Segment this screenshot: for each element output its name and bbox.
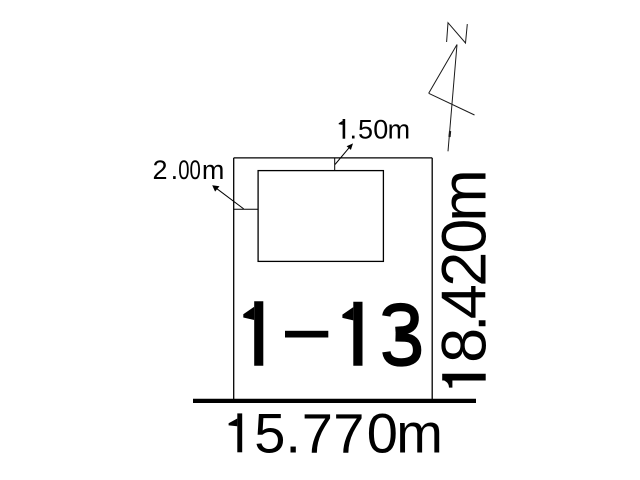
svg-text:m: m (202, 155, 225, 185)
svg-text:2.: 2. (153, 155, 179, 185)
svg-text:8.420m: 8.420m (430, 169, 500, 363)
svg-text:5.770m: 5.770m (254, 401, 443, 464)
svg-text:00: 00 (178, 155, 201, 185)
svg-text:.50m: .50m (350, 115, 411, 145)
